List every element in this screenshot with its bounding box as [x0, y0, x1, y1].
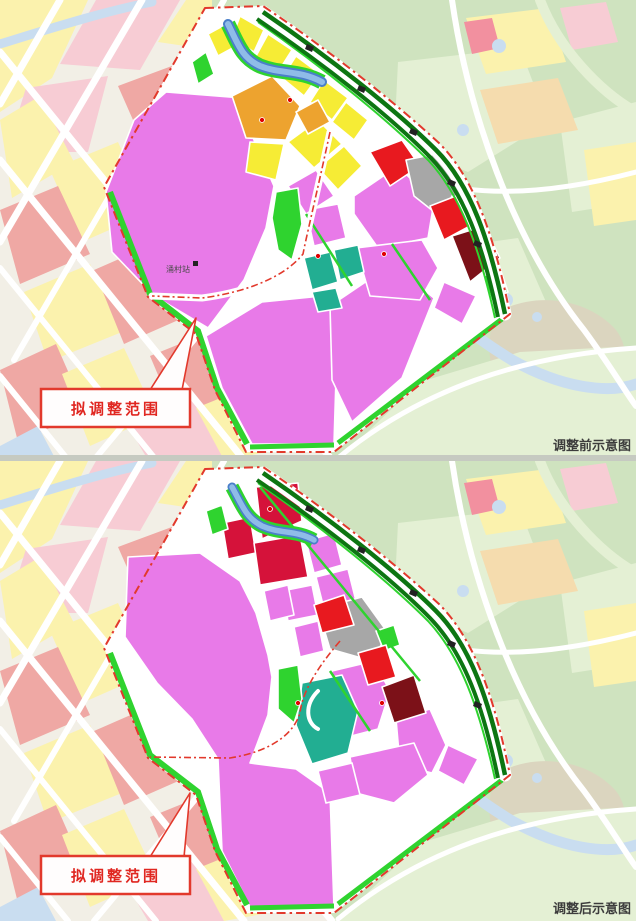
marker-dots-shape	[382, 252, 387, 257]
caption-after: 调整后示意图	[553, 901, 631, 916]
zoning-map-figure: 涌村站 拟调整范围 调整前示意图	[0, 0, 636, 921]
station-label: 涌村站	[166, 264, 190, 274]
pink-parcels-shape	[356, 240, 438, 300]
marker-dots-shape	[260, 118, 265, 123]
panel-before: 涌村站 拟调整范围 调整前示意图	[0, 0, 636, 460]
marker-dots-shape	[268, 507, 273, 512]
panel-after: 拟调整范围 调整后示意图	[0, 461, 636, 921]
marker-dots-shape	[296, 701, 301, 706]
marker-dots-shape	[288, 98, 293, 103]
teal-parcels-shape	[312, 288, 342, 312]
pink-parcels-shape	[264, 585, 294, 621]
station-marker-shape	[193, 261, 198, 266]
callout-label: 拟调整范围	[71, 400, 161, 418]
document-page: 涌村站 拟调整范围 调整前示意图	[0, 0, 636, 921]
caption-before: 调整前示意图	[553, 438, 631, 453]
pink-parcels-shape	[318, 763, 360, 803]
marker-dots-shape	[380, 701, 385, 706]
panel-divider	[0, 455, 636, 461]
crimson-parcels-shape	[254, 535, 308, 585]
marker-dots-shape	[316, 254, 321, 259]
callout-label: 拟调整范围	[71, 867, 161, 885]
